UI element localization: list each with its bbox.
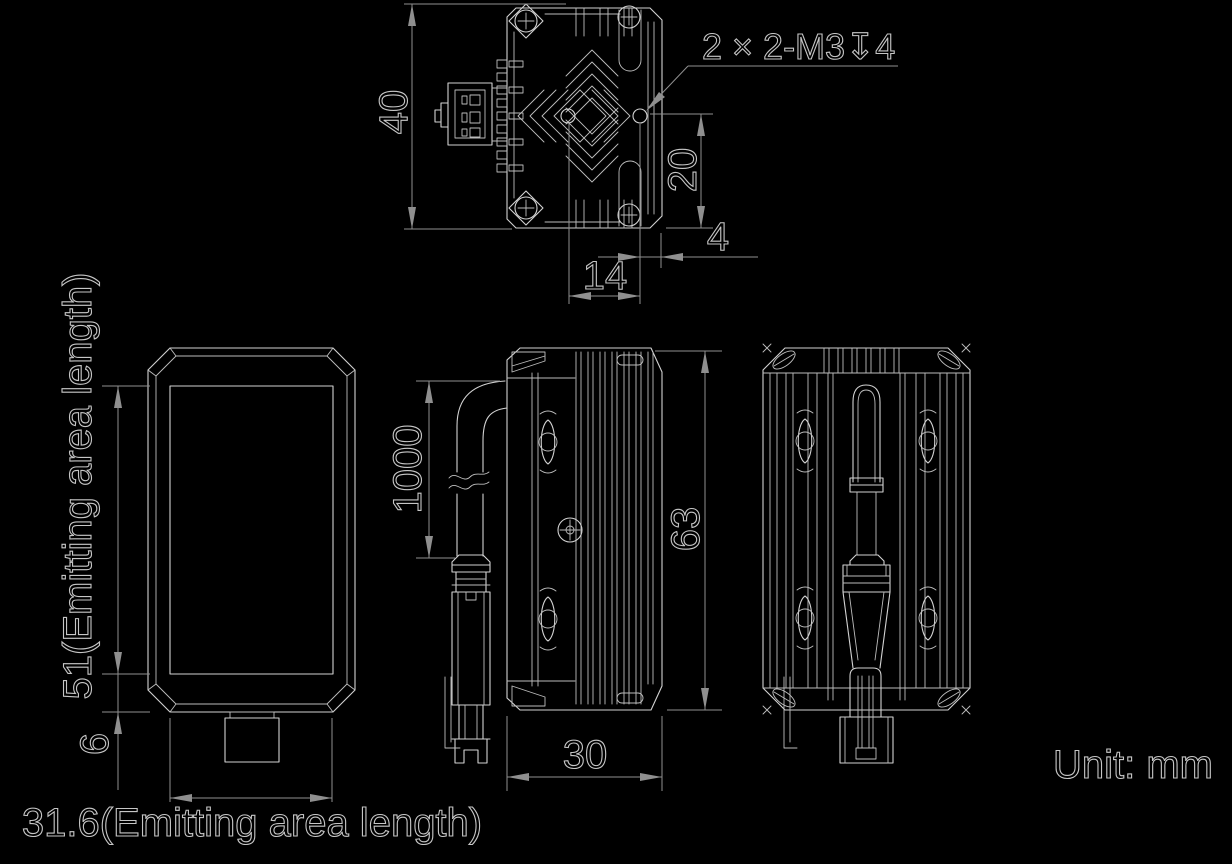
mounting-hole-left [561,109,575,123]
side-view-mount-slots [539,411,557,650]
cable-connector [445,555,490,763]
emitting-area [170,386,333,674]
rear-view-cable-channel [850,385,883,555]
dim-label-hole-to-edge: 4 [707,215,729,259]
unit-note: Unit: mm [1053,743,1213,787]
top-view-connector [435,83,507,145]
drawing-canvas: 40 2 × 2-M3↧4 20 4 14 51(Emitting area l… [0,0,1232,864]
dim-label-top-height: 40 [372,90,416,135]
rear-view-corner-bosses [763,344,970,714]
dim-label-body-width: 30 [563,733,608,777]
unit-note-label: Unit: mm [1053,743,1213,787]
cable [449,381,507,556]
dim-label-bottom-offset: 6 [73,733,117,755]
dim-label-cable-length: 1000 [386,425,430,514]
dim-body-width: 30 [507,716,662,791]
side-view-screw [558,518,582,542]
mounting-hole-right [633,109,647,123]
dim-top-height: 40 [372,4,566,229]
rear-view [763,344,970,763]
dim-emitting-height: 51(Emitting area length) [56,273,150,700]
rear-view-connector [784,555,893,763]
top-view-heatsink-pattern [518,50,630,182]
dim-label-emitting-width: 31.6(Emitting area length) [22,801,482,845]
technical-drawing: 40 2 × 2-M3↧4 20 4 14 51(Emitting area l… [0,0,1232,864]
leader-thread-callout: 2 × 2-M3↧4 [646,26,898,111]
top-view [435,4,662,228]
side-view [445,348,662,763]
dim-hole-to-bottom: 20 [650,114,713,228]
front-view [148,348,355,762]
front-view-connector [225,712,279,762]
dim-label-body-height: 63 [664,507,708,552]
side-view-fins [576,352,653,704]
thread-callout-label: 2 × 2-M3↧4 [702,26,895,67]
dim-label-hole-to-bottom: 20 [661,148,705,193]
dim-body-height: 63 [655,351,722,710]
dim-label-hole-pitch: 14 [583,254,628,298]
dim-label-emitting-height: 51(Emitting area length) [56,273,100,700]
